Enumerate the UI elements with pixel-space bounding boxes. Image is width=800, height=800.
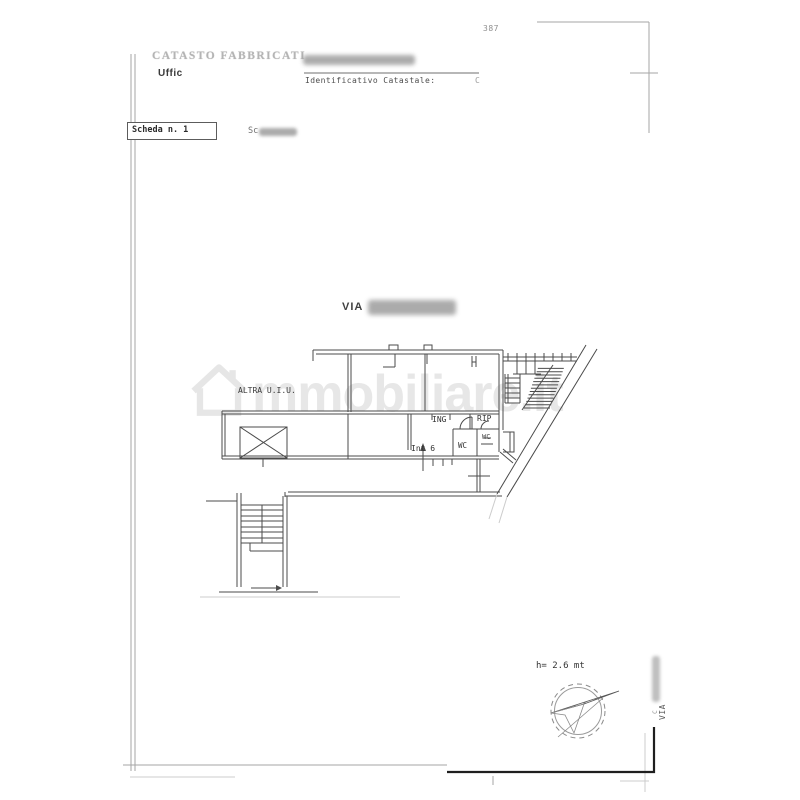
unit-number-label: Int 6 — [411, 444, 435, 453]
stairs-lower — [200, 493, 400, 597]
scanned-cadastral-sheet: { "header": { "registry_title": "CATASTO… — [0, 0, 800, 800]
other-unit-label: ALTRA U.I.U. — [238, 386, 296, 395]
identifier-value-fragment: C — [475, 76, 480, 85]
redacted-side-street-name — [652, 656, 660, 702]
street-label: VIA — [342, 301, 363, 313]
redacted-office-name — [303, 55, 415, 65]
room-label-wc-small: WC — [482, 433, 490, 441]
compass-rose — [551, 684, 619, 738]
scale-fragment: Sc — [248, 126, 258, 136]
elevator-shaft — [240, 427, 287, 467]
room-label-entrance: ING — [432, 415, 446, 424]
duct-column — [468, 459, 490, 492]
stairs-upper — [503, 353, 577, 410]
office-label: Uffic — [158, 68, 183, 79]
room-label-storage: RIP — [477, 414, 491, 423]
redacted-scale-value — [259, 128, 297, 136]
redacted-street-name — [368, 300, 456, 315]
scheda-label: Scheda n. 1 — [132, 125, 188, 135]
floor-plan-walls — [222, 345, 516, 466]
plan-linework: .ln{stroke:#4b4b4b;stroke-width:1;fill:n… — [0, 0, 800, 800]
room-label-wc-main: WC — [458, 441, 467, 450]
identifier-label: Identificativo Catastale: — [305, 76, 435, 85]
side-street-label: VIA — [659, 704, 667, 720]
registry-title: CATASTO FABBRICATI — [152, 50, 306, 62]
sheet-page-number: 387 — [483, 24, 499, 33]
height-note: h= 2.6 mt — [536, 661, 585, 671]
walkway — [206, 492, 502, 501]
